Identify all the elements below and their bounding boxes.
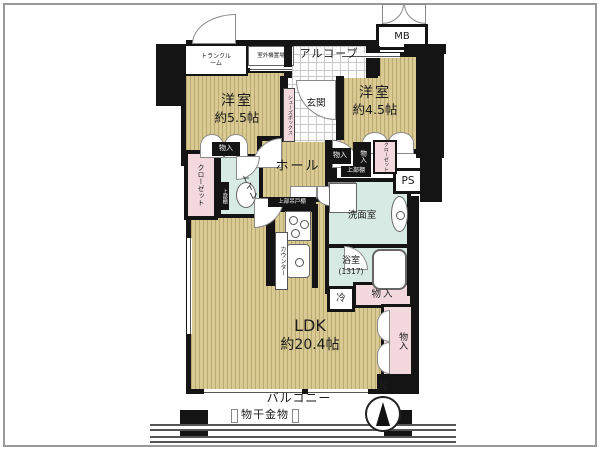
bedroom2-storage-b-label: 物入 (358, 150, 365, 163)
laundry-bracket-icon (231, 409, 238, 423)
ldk-name-text: LDK (294, 317, 326, 335)
entrance-text: 玄関 (306, 99, 325, 110)
bathroom-text: 浴室 (342, 256, 360, 266)
mb-label: MB (376, 27, 428, 47)
bathroom-size-label: (1317) (330, 267, 372, 277)
laundry-hardware-row: 物干金物 (210, 408, 320, 423)
trunk-room-label: トランクルーム (190, 46, 242, 74)
bedroom1-name-text: 洋室 (221, 93, 253, 109)
trunk-room-text: トランクルーム (201, 53, 231, 68)
laundry-hardware-text: 物干金物 (241, 409, 289, 422)
bedroom1-size-label: 約5.5帖 (204, 110, 270, 126)
bedroom1-closet-label: クローゼット (188, 154, 214, 216)
toilet-upper-shelf: 上部棚 (219, 182, 229, 210)
bedroom2-closet-label: クローゼット (382, 142, 388, 172)
toilet-upper-shelf-label: 上部棚 (221, 189, 227, 204)
kitchen-sink (286, 244, 310, 278)
outdoor-unit-label: 室外機置場 (249, 48, 293, 64)
shelf-text: 棚 (370, 58, 377, 64)
ps-label: PS (393, 171, 423, 191)
fridge-text: 冷 (336, 294, 346, 305)
compass-north-label: N (369, 380, 397, 395)
bedroom1-closet-text: クローゼット (197, 164, 205, 206)
hall-text: ホール (275, 160, 320, 175)
wall-ps-right (420, 158, 442, 202)
shoe-box-text: シューズボックス (286, 95, 292, 135)
stove-burner-icon (291, 229, 300, 238)
hall-label: ホール (262, 158, 334, 176)
ps-text: PS (402, 175, 415, 187)
washroom-text: 洗面室 (348, 211, 377, 222)
bedroom2-closet: クローゼット (373, 140, 397, 174)
compass-needle-icon (376, 402, 390, 426)
ldk-size-text: 約20.4帖 (280, 337, 339, 353)
bedroom2-upper-shelf: 上部棚 (341, 166, 371, 177)
bedroom1-storage-label: 物入 (219, 145, 233, 153)
shoe-box-label: シューズボックス (284, 89, 294, 141)
stove (285, 211, 311, 241)
stove-burner-icon (289, 216, 298, 225)
laundry-bracket-icon (292, 409, 299, 423)
bathroom-size-text: (1317) (339, 268, 364, 277)
bedroom2-name-label: 洋室 (340, 84, 410, 102)
ldk-size-label: 約20.4帖 (270, 336, 350, 354)
balcony-text: バルコニー (267, 392, 332, 406)
balcony-railing-2 (150, 436, 456, 443)
compass-north-text: N (378, 380, 388, 395)
wall-kitchen-right (312, 208, 318, 288)
bedroom2-storage-a-label: 物入 (333, 152, 347, 160)
ldk-left-window (187, 238, 192, 334)
outdoor-unit-text: 室外機置場 (257, 53, 285, 59)
alcove-label: アルコーブ (292, 48, 366, 61)
bedroom1-name-label: 洋室 (204, 92, 270, 110)
bedroom2-size-text: 約4.5帖 (353, 103, 398, 117)
storage-fold-door-arc-2 (377, 342, 390, 374)
bedroom2-upper-shelf-label: 上部棚 (347, 168, 365, 175)
bathroom-label: 浴室 (330, 256, 372, 267)
bedroom2-size-label: 約4.5帖 (340, 102, 410, 118)
storage-vertical-text: 物入 (397, 332, 407, 350)
mb-text: MB (394, 31, 410, 43)
kitchen-counter-label: カウンター (278, 246, 285, 276)
alcove-text: アルコーブ (299, 48, 358, 61)
wall-right-lower (407, 196, 419, 296)
fridge-label: 冷 (330, 289, 352, 309)
kitchen-faucet-icon (295, 258, 304, 267)
storage-horizontal-text: 物入 (371, 290, 394, 301)
wall-right-upper (416, 50, 444, 158)
bedroom2-name-text: 洋室 (359, 85, 391, 101)
bedroom1-size-text: 約5.5帖 (215, 111, 260, 125)
bathtub (372, 249, 407, 290)
balcony-label: バルコニー (244, 391, 354, 406)
shelf-label: 棚 (367, 48, 379, 74)
washing-machine-pan (329, 183, 357, 213)
washroom-label: 洗面室 (332, 210, 392, 223)
bedroom1-window (250, 67, 292, 71)
stove-burner-icon (300, 220, 309, 229)
storage-vertical-label: 物入 (390, 310, 414, 372)
kitchen-counter: カウンター (275, 232, 288, 290)
wall-top-left (156, 44, 186, 106)
kitchen-upper-shelf: 上部吊戸棚 (268, 197, 316, 207)
storage-horizontal-label: 物入 (356, 285, 410, 305)
kitchen-upper-shelf-label: 上部吊戸棚 (278, 199, 306, 205)
floorplan-canvas: 物入 上部棚 物入 物入 上部棚 上部吊戸棚 クローゼット カウンター トランク… (0, 0, 600, 450)
ldk-name-label: LDK (270, 316, 350, 336)
balcony-railing-1 (150, 424, 456, 431)
bedroom1-storage: 物入 (212, 142, 240, 156)
storage-fold-door-arc-1 (377, 310, 390, 342)
entrance-label: 玄関 (300, 98, 332, 111)
wash-basin-drain-icon (396, 211, 405, 220)
